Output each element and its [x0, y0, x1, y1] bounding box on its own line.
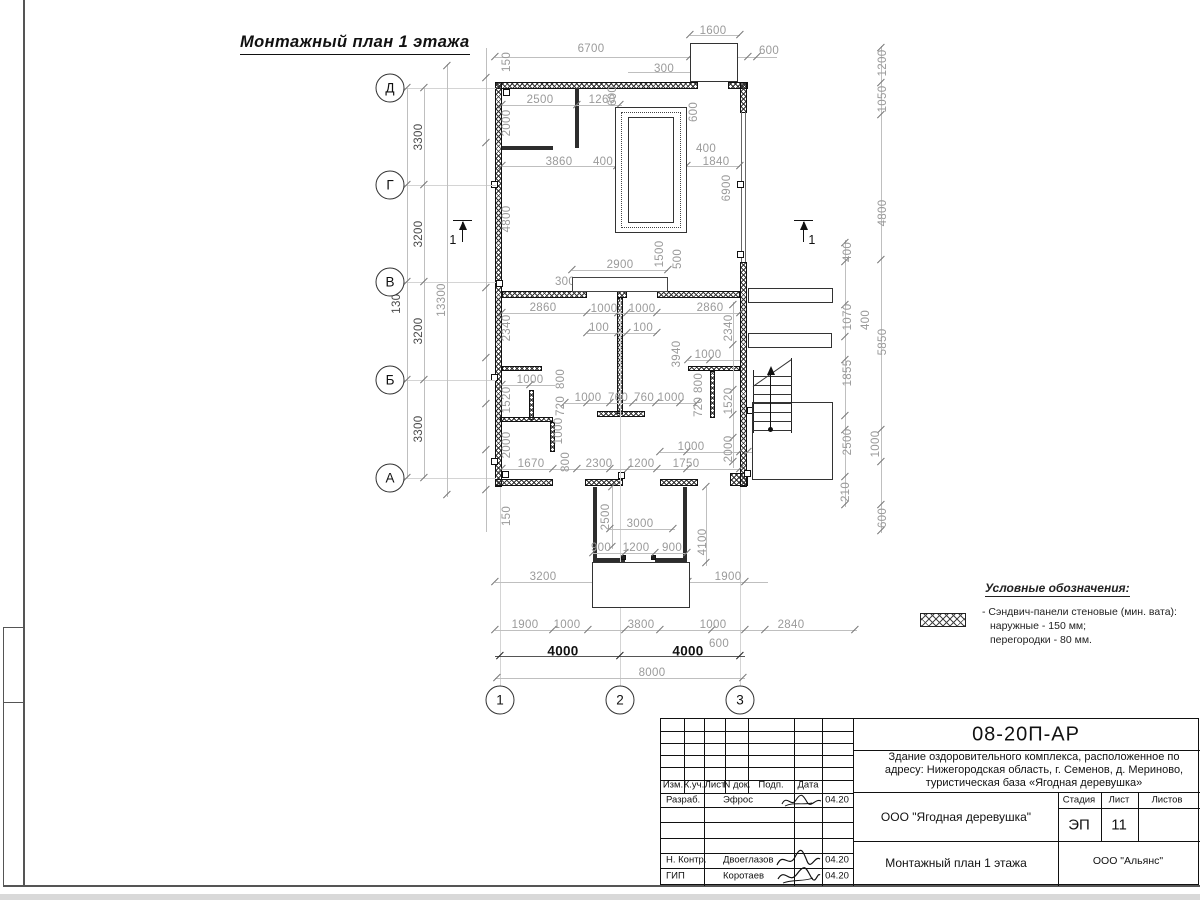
dim-line	[407, 88, 408, 478]
title-block-line	[661, 868, 853, 869]
wall-segment	[740, 82, 747, 113]
legend-title: Условные обозначения:	[985, 581, 1130, 597]
title-block-line	[661, 822, 853, 823]
dimension-label: 1050	[877, 86, 889, 113]
axis-bubble-col: 3	[726, 686, 755, 715]
dimension-label: 400	[593, 156, 613, 168]
dimension-label: 4800	[877, 200, 889, 227]
tick-mark	[877, 527, 885, 535]
legend-item-line3: перегородки - 80 мм.	[990, 634, 1092, 646]
dimension-label: 720	[693, 397, 705, 417]
dimension-label: 1520	[723, 388, 735, 415]
document-code: 08-20П-АР	[972, 724, 1080, 747]
dimension-label: 600	[759, 45, 779, 57]
dim-line	[404, 282, 496, 283]
wall-segment	[657, 291, 740, 298]
dimension-label: 1670	[518, 458, 545, 470]
dimension-label: 400	[860, 310, 872, 330]
window-marker	[737, 181, 744, 188]
sheets-label: Листов	[1152, 795, 1183, 806]
window-marker	[737, 251, 744, 258]
title-block-line	[1101, 792, 1102, 841]
wall-segment	[585, 479, 623, 486]
tick-mark	[851, 626, 859, 634]
legend-item-line1: - Сэндвич-панели стеновые (мин. вата):	[982, 606, 1177, 618]
wall-segment	[502, 366, 542, 371]
axis-bubble-row: Б	[376, 366, 405, 395]
dim-line	[404, 478, 496, 479]
col-list: Лист	[705, 780, 726, 791]
dimension-label: 4100	[697, 529, 709, 556]
side-deck-2	[748, 333, 832, 348]
dimension-label: 1900	[715, 571, 742, 583]
wall-segment	[502, 291, 587, 298]
dimension-label: 500	[672, 249, 684, 269]
wall-segment	[495, 479, 553, 486]
dimension-label: 1855	[842, 360, 854, 387]
dimension-label: 210	[840, 482, 852, 502]
dimension-label: 1000	[678, 441, 705, 453]
dimension-label: 1070	[842, 304, 854, 331]
dimension-label: 100	[589, 322, 609, 334]
dimension-label: 760	[608, 392, 628, 404]
sheet-title: Монтажный план 1 этажа	[885, 856, 1027, 870]
project-description-line3: туристическая база «Ягодная деревушка»	[926, 777, 1143, 789]
stage-value: ЭП	[1068, 817, 1090, 834]
dim-line	[404, 185, 496, 186]
dimension-label: 1000	[700, 619, 727, 631]
tick-mark	[841, 501, 849, 509]
sheet-value: 11	[1111, 817, 1127, 834]
row-name: Двоеглазов	[723, 855, 774, 866]
title-block-line	[1058, 808, 1200, 809]
dimension-label: 2500	[600, 504, 612, 531]
dimension-label: 720	[555, 396, 567, 416]
title-block-line	[661, 731, 853, 732]
dimension-label: 2000	[501, 432, 513, 459]
dimension-label: 1200	[628, 458, 655, 470]
dimension-label: 3860	[546, 156, 573, 168]
side-deck-1	[748, 288, 833, 303]
dimension-label: 3300	[413, 416, 425, 443]
glazing-line	[745, 112, 746, 262]
dimension-label: 1840	[703, 156, 730, 168]
dimension-label: 600	[688, 102, 700, 122]
dimension-label: 1500	[654, 241, 666, 268]
drawing-title: Монтажный план 1 этажа	[240, 33, 470, 55]
dim-line	[404, 380, 496, 381]
dimension-label: 1750	[673, 458, 700, 470]
dim-line	[486, 48, 487, 532]
dimension-label: 2300	[586, 458, 613, 470]
title-block-line	[853, 719, 854, 886]
col-podp: Подп.	[758, 780, 783, 791]
dimension-label: 1900	[512, 619, 539, 631]
row-role: Н. Контр.	[666, 855, 706, 866]
row-name: Эфрос	[723, 795, 753, 806]
dimension-label: 2340	[723, 315, 735, 342]
dim-line	[620, 298, 621, 686]
dimension-label: 600	[607, 86, 619, 106]
dimension-label: 3200	[530, 571, 557, 583]
row-date: 04.20	[825, 855, 849, 866]
dimension-label: 2500	[527, 94, 554, 106]
stair-tread	[753, 376, 792, 377]
axis-bubble-col: 2	[606, 686, 635, 715]
tick-mark	[736, 31, 744, 39]
stair-tread	[753, 421, 792, 422]
stage-label: Стадия	[1063, 795, 1095, 806]
wall-segment	[710, 371, 715, 418]
row-date: 04.20	[825, 871, 849, 882]
dim-line	[404, 88, 496, 89]
col-kuch: К.уч.	[684, 780, 705, 791]
dimension-label: 3940	[671, 341, 683, 368]
title-block-line	[1058, 792, 1059, 886]
tick-mark	[736, 162, 744, 170]
dimension-label: 800	[693, 373, 705, 393]
partition-wall	[502, 146, 553, 150]
partition-wall	[575, 88, 579, 148]
dimension-label: 150	[501, 52, 513, 72]
dimension-label: 13300	[436, 283, 448, 316]
dimension-label: 1200	[877, 50, 889, 77]
dimension-label: 800	[560, 452, 572, 472]
dimension-label: 3200	[413, 318, 425, 345]
frame-inner-left-line	[3, 627, 4, 886]
title-block-line	[661, 807, 853, 808]
signature-gip	[773, 865, 823, 887]
section-label: 1	[808, 233, 815, 247]
dimension-label: 100	[633, 322, 653, 334]
company-name: ООО "Альянс"	[1093, 855, 1163, 867]
legend-item-line2: наружные - 150 мм;	[990, 620, 1086, 632]
stair-tread	[753, 403, 792, 404]
pool-inner-outline	[628, 117, 674, 223]
dimension-label: 2000	[501, 110, 513, 137]
drawing-sheet: Монтажный план 1 этажа 33003200320033001…	[0, 0, 1200, 900]
dimension-label: 1520	[501, 387, 513, 414]
page-edge	[0, 894, 1200, 900]
title-block: 08-20П-АР Здание оздоровительного компле…	[660, 718, 1199, 885]
dimension-label: 600	[877, 508, 889, 528]
title-block-line	[661, 767, 853, 768]
sheet-label: Лист	[1109, 795, 1130, 806]
axis-bubble-row: В	[376, 268, 405, 297]
col-ndok: N док.	[723, 780, 750, 791]
signature-razrab	[779, 792, 824, 810]
dimension-label: 6900	[721, 175, 733, 202]
wall-segment	[617, 291, 627, 298]
dimension-label: 1000	[575, 392, 602, 404]
dimension-label: 1000	[658, 392, 685, 404]
dimension-label: 900	[662, 542, 682, 554]
axis-bubble-row: Г	[376, 171, 405, 200]
dimension-label: 5850	[877, 329, 889, 356]
dimension-label: 2500	[842, 429, 854, 456]
dimension-label: 2860	[697, 302, 724, 314]
dim-line	[612, 487, 613, 549]
bench-outline	[572, 277, 668, 292]
client-name: ООО "Ягодная деревушка"	[881, 810, 1031, 824]
dimension-label: 2900	[607, 259, 634, 271]
dimension-label: 1000	[591, 303, 618, 315]
title-block-line	[1138, 792, 1139, 841]
stair-tread	[753, 385, 792, 386]
entry-platform-outline	[592, 562, 690, 608]
dimension-label: 1600	[700, 25, 727, 37]
window-marker	[502, 471, 509, 478]
wall-segment	[660, 479, 698, 486]
dimension-label: 1000	[517, 374, 544, 386]
wall-hatch-symbol	[920, 613, 966, 627]
row-role: ГИП	[666, 871, 685, 882]
frame-bottom-line	[3, 885, 1200, 887]
stair-arrow-dot	[768, 427, 773, 432]
frame-cell-line	[3, 627, 24, 628]
window-marker	[496, 280, 503, 287]
wall-segment	[597, 411, 645, 417]
dimension-label: 2840	[778, 619, 805, 631]
stair-tread	[753, 412, 792, 413]
tick-mark	[443, 491, 451, 499]
dimension-label: 3300	[413, 124, 425, 151]
axis-bubble-row: А	[376, 464, 405, 493]
dimension-label: 1000	[870, 431, 882, 458]
title-block-line	[853, 841, 1200, 842]
wall-segment	[529, 390, 534, 420]
col-izm: Изм.	[663, 780, 683, 791]
window-marker	[491, 458, 498, 465]
dimension-label: 4000	[672, 644, 703, 659]
terrace-outline	[752, 402, 833, 480]
title-block-line	[661, 743, 853, 744]
section-label: 1	[449, 233, 456, 247]
wall-segment	[495, 82, 698, 89]
row-name: Коротаев	[723, 871, 764, 882]
dimension-label: 1000	[554, 619, 581, 631]
project-description-line1: Здание оздоровительного комплекса, распо…	[889, 751, 1180, 763]
dimension-label: 1000	[695, 349, 722, 361]
project-description-line2: адресу: Нижегородская область, г. Семено…	[885, 764, 1183, 776]
stair-arrow-line	[770, 369, 771, 429]
dim-line	[495, 678, 745, 679]
chimney-outline	[690, 43, 738, 82]
dimension-label: 6700	[578, 43, 605, 55]
dimension-label: 900	[591, 542, 611, 554]
dimension-label: 300	[654, 63, 674, 75]
dimension-label: 3000	[627, 518, 654, 530]
dimension-label: 760	[634, 392, 654, 404]
dimension-label: 1200	[623, 542, 650, 554]
stair-tread	[753, 394, 792, 395]
dimension-label: 800	[555, 369, 567, 389]
axis-bubble-col: 1	[486, 686, 515, 715]
axis-bubble-row: Д	[376, 74, 405, 103]
dimension-label: 8000	[639, 667, 666, 679]
row-role: Разраб.	[666, 795, 700, 806]
dimension-label: 150	[501, 506, 513, 526]
window-marker	[503, 89, 510, 96]
dimension-label: 400	[696, 143, 716, 155]
dimension-label: 1000	[553, 418, 565, 445]
frame-cell-line	[3, 702, 24, 703]
stair-arrowhead	[767, 366, 775, 375]
dimension-label: 400	[842, 242, 854, 262]
dimension-label: 2340	[501, 315, 513, 342]
tick-mark	[653, 329, 661, 337]
dimension-label: 3200	[413, 221, 425, 248]
title-block-line	[661, 838, 853, 839]
tick-mark	[669, 525, 677, 533]
dimension-label: 600	[709, 638, 729, 650]
dimension-label: 4000	[547, 644, 578, 659]
window-marker	[744, 470, 751, 477]
wall-segment	[500, 417, 553, 422]
stair-part	[753, 370, 754, 433]
dimension-label: 3800	[628, 619, 655, 631]
dimension-label: 1000	[629, 303, 656, 315]
title-block-line	[853, 792, 1200, 793]
dimension-label: 2000	[723, 436, 735, 463]
title-block-line	[661, 755, 853, 756]
frame-left-line	[23, 0, 25, 886]
row-date: 04.20	[825, 795, 849, 806]
dimension-label: 2860	[530, 302, 557, 314]
col-data: Дата	[797, 780, 818, 791]
dimension-label: 4800	[501, 206, 513, 233]
dim-line	[447, 64, 448, 497]
